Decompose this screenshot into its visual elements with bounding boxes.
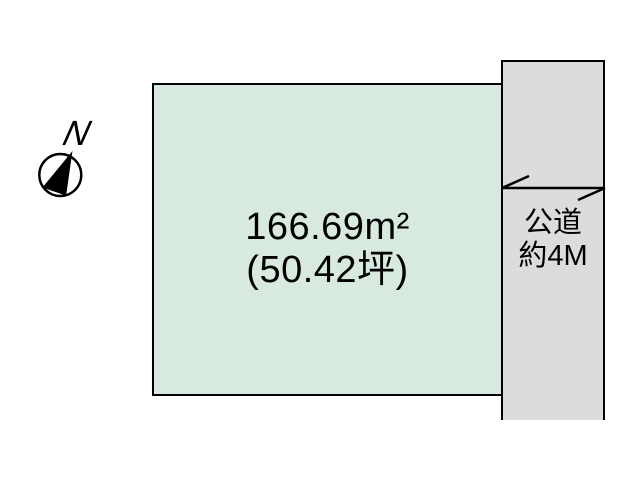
parcel-area-tsubo: (50.42坪) — [246, 249, 408, 292]
road-label-line2: 約4M — [501, 240, 605, 273]
road-label-line1: 公道 — [501, 207, 605, 240]
parcel-area-m2: 166.69m² — [245, 206, 410, 249]
road-label: 公道 約4M — [501, 207, 605, 273]
compass-icon — [33, 147, 93, 207]
land-parcel: 166.69m² (50.42坪) — [152, 83, 503, 396]
land-plot-diagram: 166.69m² (50.42坪) 公道 約4M N — [0, 0, 640, 480]
